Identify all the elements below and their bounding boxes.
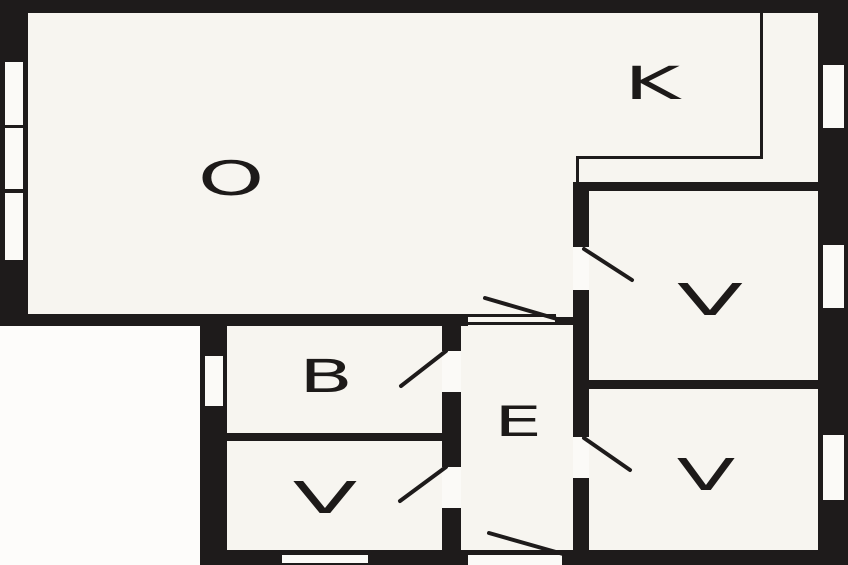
door-opening-v-bottom-right <box>573 437 589 478</box>
door-swing-v-bottom-right <box>584 438 630 470</box>
kitchen-boundary-vertical <box>760 13 763 158</box>
window-left-3 <box>5 193 23 260</box>
door-opening-b <box>442 351 461 392</box>
wall-hall-right <box>573 182 589 557</box>
wall-b-v-divider <box>225 433 443 441</box>
wall-top <box>0 0 848 13</box>
door-swing-b <box>401 351 446 386</box>
kitchen-boundary-corner <box>576 156 579 184</box>
room-label-room-b: B <box>299 351 353 404</box>
door-swing-v-bottom-left <box>400 467 446 501</box>
room-label-room-v-bottom-left: V <box>293 473 358 524</box>
kitchen-boundary-horizontal <box>576 156 763 159</box>
room-label-room-o-living: O <box>198 152 265 207</box>
wall-kitchen-bottom <box>573 182 820 191</box>
room-label-room-v-bottom-right: V <box>677 450 736 501</box>
floor-plan-drawing: OKVVBEV <box>0 0 848 565</box>
entrance-opening <box>468 555 562 565</box>
door-swing-v-top-right <box>584 249 632 280</box>
window-right-2 <box>823 245 844 308</box>
wall-o-bottom <box>0 314 468 326</box>
window-bottom <box>282 555 368 563</box>
outside-bottom-left <box>0 326 200 565</box>
floor-plan: OKVVBEV <box>0 0 848 565</box>
wall-lower-left <box>200 314 227 565</box>
window-right-3 <box>823 435 844 500</box>
window-left-1 <box>5 62 23 125</box>
door-opening-v-bottom-left <box>442 467 461 508</box>
window-right-1 <box>823 65 844 128</box>
window-b-left <box>205 356 223 406</box>
o-hall-opening-bottom-line <box>466 322 556 325</box>
room-label-room-k-kitchen: K <box>624 58 683 110</box>
wall-v-v-divider <box>588 380 822 389</box>
room-label-room-v-top-right: V <box>677 274 743 325</box>
window-left-2 <box>5 128 23 189</box>
room-label-room-e-hallway: E <box>494 398 542 447</box>
door-opening-v-top-right <box>573 247 589 290</box>
